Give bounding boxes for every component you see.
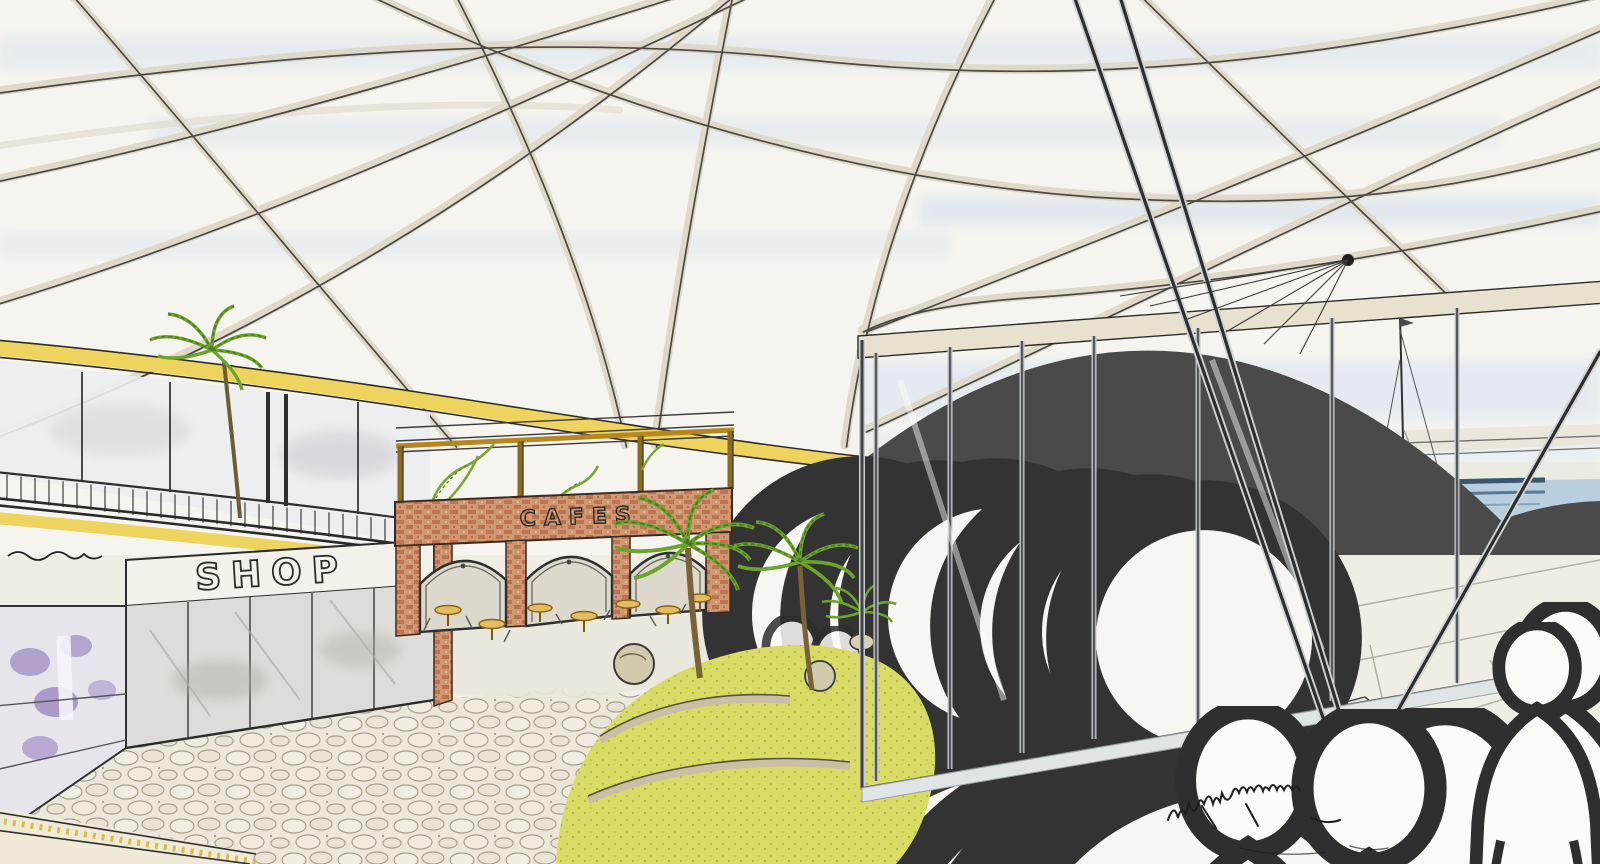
round-planter bbox=[614, 644, 654, 684]
architectural-sketch: SHOP bbox=[0, 0, 1600, 864]
cafe-sign: CAFES bbox=[519, 503, 639, 532]
